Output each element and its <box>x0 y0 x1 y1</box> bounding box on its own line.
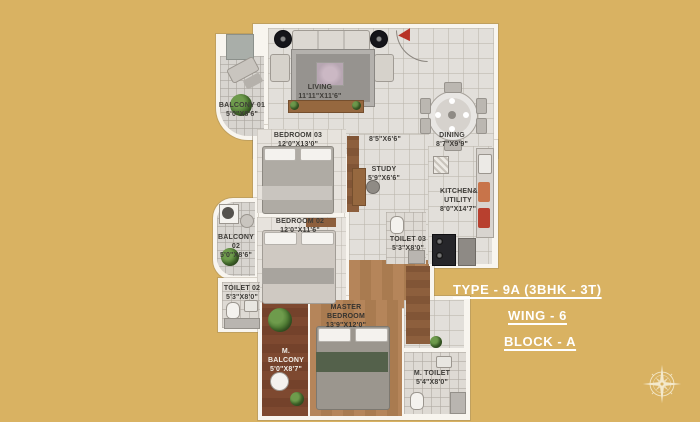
plan-wing-label: WING - 6 <box>508 308 567 323</box>
room-label: 8'5"X6'6" <box>362 136 408 145</box>
dining-chair <box>444 82 462 93</box>
room-label: DINING 8'7"X9'9" <box>426 132 478 150</box>
room-dim: 12'0"X13'0" <box>278 141 318 148</box>
toilet-wc <box>226 302 240 319</box>
room-dim: 8'0"X14'7" <box>440 206 476 213</box>
room-label: STUDY 5'9"X6'6" <box>364 166 404 184</box>
room-name: TOILET 02 <box>224 285 260 292</box>
room-name: M. TOILET <box>414 370 450 377</box>
plant-icon <box>352 101 361 110</box>
room-label: M. BALCONY 5'0"X8'7" <box>264 348 308 374</box>
pillow <box>300 148 332 161</box>
room-name: MASTER BEDROOM <box>327 304 365 320</box>
toilet-wc <box>410 392 424 410</box>
side-table <box>240 214 254 228</box>
room-name: BALCONY 01 <box>219 102 265 109</box>
floor-plan-canvas: BALCONY 01 5'0"X8'6" LIVING 11'11"X11'6"… <box>0 0 700 422</box>
room-name: M. BALCONY <box>268 348 304 364</box>
fruit-tray <box>478 208 490 228</box>
room-name: DINING <box>439 132 465 139</box>
room-dim: 8'7"X9'9" <box>436 141 468 148</box>
room-dim: 11'11"X11'6" <box>298 93 341 100</box>
room-name: STUDY <box>372 166 397 173</box>
room-label: TOILET 03 5'3"X8'0" <box>388 236 428 254</box>
room-label: TOILET 02 5'3"X8'0" <box>222 285 262 303</box>
plant-icon <box>290 101 299 110</box>
room-dim: 5'4"X8'0" <box>416 379 448 386</box>
room-label: BEDROOM 02 12'0"X11'6" <box>274 218 326 236</box>
room-label: BEDROOM 03 12'0"X13'0" <box>272 132 324 150</box>
room-name: BALCONY 02 <box>218 234 254 250</box>
compass-rose-icon <box>640 362 684 406</box>
bed-runner <box>262 186 332 200</box>
armchair <box>270 54 290 82</box>
room-dim: 12'0"X11'6" <box>280 227 320 234</box>
shower <box>224 318 260 329</box>
pillow <box>264 148 296 161</box>
sofa <box>292 30 370 51</box>
dining-plates <box>448 111 456 119</box>
room-dim: 5'3"X8'0" <box>226 294 258 301</box>
sink <box>436 356 452 368</box>
plan-block-label: BLOCK - A <box>504 334 576 349</box>
shower <box>450 392 466 414</box>
wardrobe <box>406 266 430 344</box>
plan-type-label: TYPE - 9A (3BHK - 3T) <box>453 282 602 297</box>
dining-chair <box>476 98 487 114</box>
bed-throw <box>316 352 388 372</box>
room-name: BEDROOM 03 <box>274 132 322 139</box>
armchair <box>374 54 394 82</box>
room-dim: 5'0"X8'6" <box>220 252 252 259</box>
bed-runner <box>262 268 334 284</box>
plant-icon <box>430 336 442 348</box>
room-label: KITCHEN& UTILITY 8'0"X14'7" <box>440 188 476 214</box>
room-name: TOILET 03 <box>390 236 426 243</box>
washer <box>458 238 476 266</box>
room-dim: 8'5"X6'6" <box>369 136 401 143</box>
burner <box>436 238 443 245</box>
duct <box>433 156 449 174</box>
dining-chair <box>420 98 431 114</box>
toilet-wc <box>390 216 404 234</box>
burner <box>436 252 443 259</box>
speaker-icon <box>274 30 292 48</box>
room-dim: 5'3"X8'0" <box>392 245 424 252</box>
room-dim: 5'0"X8'7" <box>270 366 302 373</box>
room-dim: 13'9"X12'0" <box>326 322 366 329</box>
fruit-tray <box>478 182 490 202</box>
speaker-icon <box>370 30 388 48</box>
room-label: M. TOILET 5'4"X8'0" <box>408 370 456 388</box>
room-name: BEDROOM 02 <box>276 218 324 225</box>
coffee-table <box>316 62 344 86</box>
room-dim: 5'0"X8'6" <box>226 111 258 118</box>
washing-machine-drum <box>222 207 234 219</box>
room-label: BALCONY 01 5'0"X8'6" <box>218 102 266 120</box>
room-name: KITCHEN& UTILITY <box>440 188 478 204</box>
kitchen-sink <box>478 154 492 174</box>
round-chair <box>270 372 289 391</box>
plant-icon <box>290 392 304 406</box>
room-label: LIVING 11'11"X11'6" <box>288 84 352 102</box>
room-label: BALCONY 02 5'0"X8'6" <box>215 234 257 260</box>
room-name: LIVING <box>308 84 333 91</box>
plant-icon <box>268 308 292 332</box>
room-dim: 5'9"X6'6" <box>368 175 400 182</box>
room-label: MASTER BEDROOM 13'9"X12'0" <box>316 304 376 330</box>
